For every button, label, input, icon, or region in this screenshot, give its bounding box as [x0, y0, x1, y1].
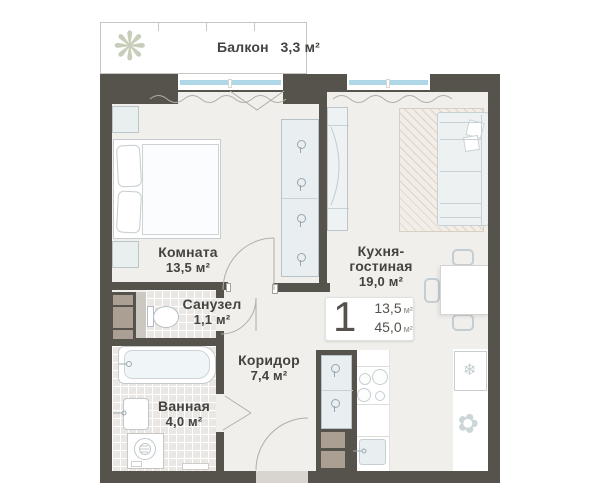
- washer-drum-inner: [139, 443, 151, 455]
- room-label-corridor: Коридор 7,4 м²: [238, 353, 300, 383]
- closet-handle: [331, 399, 340, 408]
- dining-table: [440, 265, 489, 315]
- washer-tray: [131, 461, 142, 467]
- room-label-bath: Ванная 4,0 м²: [158, 399, 210, 429]
- wall: [100, 282, 228, 290]
- wall: [216, 432, 224, 471]
- wardrobe-handle: [297, 140, 306, 149]
- balcony-glazing-divider: [254, 23, 255, 31]
- sofa-armrest: [440, 122, 482, 123]
- door-jamb: [226, 283, 231, 292]
- door-jamb: [272, 284, 278, 294]
- sofa-cushion-divider: [440, 139, 482, 140]
- bed-mattress: [142, 144, 219, 235]
- window: [347, 74, 430, 90]
- sofa-backrest: [481, 115, 482, 225]
- ventilation-shaft: [321, 451, 345, 468]
- wardrobe: [281, 119, 319, 277]
- counter-divider: [357, 366, 390, 367]
- stove-burner: [357, 388, 371, 402]
- wall: [100, 338, 224, 346]
- washing-machine: [127, 433, 164, 469]
- snowflake-icon: ❄: [463, 363, 476, 379]
- room-label-kitchen-living: Кухня- гостиная 19,0 м²: [349, 244, 412, 289]
- room-name: Коридор: [238, 353, 300, 368]
- apartment-summary-badge: 1 13,5м² 45,0м²: [325, 297, 414, 341]
- unit-divider: [328, 208, 349, 209]
- stove-burner: [359, 373, 371, 385]
- bathroom-sink: [123, 398, 149, 430]
- fridge: ❄: [454, 351, 487, 391]
- room-label-wc: Санузел 1,1 м²: [183, 297, 242, 327]
- nightstand: [112, 241, 139, 268]
- bed-pillow: [116, 144, 142, 187]
- counter-divider: [357, 436, 390, 437]
- wall: [488, 74, 500, 483]
- counter-divider: [357, 404, 390, 405]
- sofa-pillow: [463, 135, 480, 152]
- towel-rail: [182, 463, 209, 470]
- wall: [319, 92, 327, 292]
- room-area: 4,0 м²: [158, 414, 210, 429]
- kitchen-sink: [359, 439, 386, 465]
- floor-plan: ❋ Балкон 3,3 м²: [0, 0, 601, 501]
- balcony-glazing-divider: [206, 23, 207, 31]
- living-area-unit: м²: [404, 305, 413, 315]
- total-area-value: 45,0: [374, 319, 401, 335]
- sofa-cushion-divider: [440, 171, 482, 172]
- chair: [424, 278, 440, 303]
- balcony-area: ❋ Балкон 3,3 м²: [100, 22, 307, 74]
- wardrobe-divider: [282, 198, 320, 199]
- closet-divider: [322, 390, 353, 391]
- stove-burner: [375, 391, 385, 401]
- room-label-bedroom: Комната 13,5 м²: [158, 245, 218, 275]
- room-name: гостиная: [349, 259, 412, 274]
- bed-pillow: [116, 190, 142, 233]
- living-area-value: 13,5: [374, 300, 401, 316]
- wardrobe-handle: [297, 214, 306, 223]
- room-area: 1,1 м²: [183, 312, 242, 327]
- wardrobe-handle: [297, 253, 306, 262]
- room-area: 13,5 м²: [158, 260, 218, 275]
- window: [178, 74, 283, 90]
- room-name: Комната: [158, 245, 218, 260]
- room-name: Ванная: [158, 399, 210, 414]
- plant-icon: ❋: [113, 27, 147, 67]
- toilet-bowl: [153, 306, 179, 328]
- ventilation-shaft: [321, 432, 345, 448]
- sofa: [437, 112, 489, 226]
- corridor-closet: [321, 355, 352, 429]
- balcony-glazing-divider: [158, 23, 159, 31]
- wardrobe-handle: [297, 178, 306, 187]
- window-divider: [228, 79, 232, 88]
- room-area: 7,4 м²: [238, 368, 300, 383]
- kitchen-tall-unit: [327, 107, 348, 231]
- wall: [100, 74, 112, 483]
- chair: [452, 249, 474, 266]
- stove-burner: [372, 369, 388, 385]
- ventilation-shaft: [113, 295, 133, 305]
- shaft-side-panel: [136, 292, 146, 338]
- rooms-count: 1: [333, 300, 356, 334]
- window-divider: [386, 79, 390, 88]
- wall: [100, 74, 500, 92]
- balcony-area-value: 3,3 м²: [280, 39, 320, 55]
- nightstand: [112, 106, 139, 133]
- balcony-name: Балкон: [217, 39, 269, 55]
- total-area-unit: м²: [404, 324, 413, 334]
- sofa-cushion-divider: [440, 203, 482, 204]
- sofa-armrest: [440, 217, 482, 218]
- room-name: Кухня-: [349, 244, 412, 259]
- closet-handle: [331, 364, 340, 373]
- room-area: 19,0 м²: [349, 274, 412, 289]
- ventilation-shaft: [113, 330, 133, 339]
- unit-divider: [328, 125, 349, 126]
- wall: [273, 283, 330, 292]
- wall: [216, 346, 224, 394]
- chair: [452, 314, 474, 331]
- ventilation-shaft: [113, 307, 133, 328]
- bathtub-inner: [124, 350, 210, 379]
- entry-door-threshold: [256, 471, 308, 483]
- balcony-label: Балкон 3,3 м²: [217, 39, 320, 57]
- room-name: Санузел: [183, 297, 242, 312]
